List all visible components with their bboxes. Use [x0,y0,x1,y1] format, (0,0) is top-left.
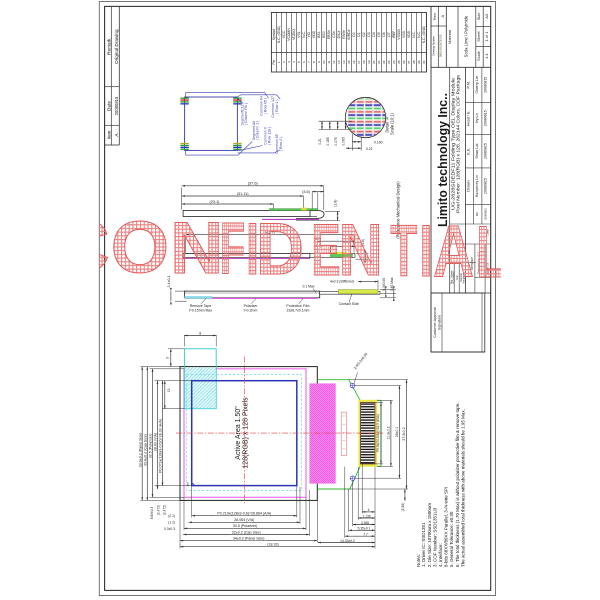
svg-text:D/C#: D/C# [337,31,341,39]
svg-text:VDD: VDD [407,30,411,38]
svg-text:P.M.: P.M. [466,81,471,89]
svg-text:R/W#: R/W# [342,30,346,39]
svg-text:8: 8 [312,61,316,63]
svg-text:A3: A3 [484,14,489,19]
svg-text:25: 25 [397,60,401,64]
svg-text:Symbol: Symbol [272,29,276,41]
svg-text:t=0.2mm: t=0.2mm [244,308,258,312]
svg-text:7: 7 [307,61,311,63]
svg-text:Size: Size [476,13,481,21]
svg-text:2. Die Size: 10700um x 1500um: 2. Die Size: 10700um x 1500um [427,503,432,567]
svg-text:0.21: 0.21 [366,147,373,151]
svg-text:(18.33): (18.33) [267,543,278,547]
svg-text:VSSIO: VSSIO [397,29,401,40]
svg-text:Scale: Scale [476,51,481,61]
svg-text:Limito technology Inc..: Limito technology Inc.. [435,93,450,227]
svg-text:P0.5x(24-0.64)=11.5 (W/A): P0.5x(24-0.64)=11.5 (W/A) [376,414,380,452]
svg-text:( Row 1 ): ( Row 1 ) [275,100,279,115]
svg-text:8: 8 [199,331,201,335]
svg-text:27.3±0.2: 27.3±0.2 [402,427,406,440]
svg-text:26±0.1: 26±0.1 [395,427,399,437]
svg-text:7.7: 7.7 [363,533,368,537]
svg-text:Cherry Lin: Cherry Lin [475,76,479,94]
svg-text:3: 3 [287,61,291,63]
svg-text:N.C. (GND): N.C. (GND) [277,26,281,44]
svg-text:Drawing Number: Drawing Number [432,36,436,56]
svg-text:VDD: VDD [312,30,316,38]
svg-text:VSL: VSL [297,31,301,38]
svg-text:1:1: 1:1 [484,53,489,58]
svg-text:Date: Date [106,101,111,111]
svg-text:VSS: VSS [402,30,406,38]
svg-text:0.065: 0.065 [342,137,346,146]
svg-text:(1.1): (1.1) [168,521,175,525]
svg-text:28: 28 [412,60,416,64]
svg-text:P0.219x(128x3-0.6)=26.864 (A/A: P0.219x(128x3-0.6)=26.864 (A/A) [217,512,271,516]
svg-text:23: 23 [387,60,391,64]
svg-text:Material: Material [447,30,452,44]
svg-text:4: 4 [292,61,296,63]
svg-text:Remove Tape: Remove Tape [190,304,212,308]
svg-text:E/RD#: E/RD# [347,29,351,39]
svg-text:Humphrey Lin: Humphrey Lin [475,175,479,197]
svg-text:Signature: Signature [438,315,442,330]
svg-text:5. General Tolerance: ±0.30: 5. General Tolerance: ±0.30 [449,511,454,567]
svg-text:(23.1): (23.1) [210,200,221,204]
svg-text:P0.073x(128x3-0.62)=28.03 (A/A: P0.073x(128x3-0.62)=28.03 (A/A) [159,419,163,473]
svg-text:14.33±0.2: 14.33±0.2 [340,539,355,543]
svg-text:1.139: 1.139 [362,514,370,518]
svg-text:13: 13 [337,60,341,64]
svg-text:11.3±0.2: 11.3±0.2 [386,426,390,439]
svg-text:O: O [111,206,169,288]
svg-text:0.075: 0.075 [334,137,338,146]
svg-text:16: 16 [352,60,356,64]
svg-text:(1.8): (1.8) [334,200,338,207]
svg-text:A: A [441,14,445,17]
svg-text:29: 29 [417,60,421,64]
svg-text:(37.6): (37.6) [248,182,259,186]
svg-text:6. The total thickness (1.70 M: 6. The total thickness (1.70 Max) is wit… [455,403,460,568]
svg-text:N.C.: N.C. [412,31,416,38]
svg-text:D6: D6 [382,32,386,36]
svg-text:4. Interface:: 4. Interface: [438,543,443,567]
svg-text:D1: D1 [357,32,361,36]
svg-text:N.C. (GND): N.C. (GND) [422,26,426,44]
svg-text:6: 6 [302,61,306,63]
svg-text:Pin: Pin [272,60,276,65]
svg-text:Active Area 1.50": Active Area 1.50" [235,406,242,460]
svg-text:13: 13 [167,389,171,393]
svg-text:Item: Item [106,130,111,139]
svg-text:11: 11 [327,60,331,63]
svg-text:( Row 2 ): ( Row 2 ) [279,137,283,152]
svg-text:Scale (10:1): Scale (10:1) [389,112,394,135]
svg-text:34±0.2 (Panel Size): 34±0.2 (Panel Size) [233,536,265,540]
svg-text:128(RGB) x 128 Pixels: 128(RGB) x 128 Pixels [242,397,249,469]
svg-text:20080815: 20080815 [484,110,488,126]
svg-text:Polarizer: Polarizer [244,304,259,308]
svg-text:BS1: BS1 [317,31,321,38]
svg-text:(3.6): (3.6) [302,190,311,194]
svg-text:3. COF Number: SSD1351U3: 3. COF Number: SSD1351U3 [432,507,437,567]
svg-text:E.E.: E.E. [466,147,471,155]
svg-text:Drawn: Drawn [466,180,471,192]
svg-text:8-bits 68XX/80XX Parallel, 3-/: 8-bits 68XX/80XX Parallel, 3-/4-wire SPI [444,487,449,567]
svg-text:N.C.: N.C. [417,31,421,38]
svg-text:Customer Approval: Customer Approval [433,307,437,338]
svg-text:14: 14 [342,60,346,64]
svg-text:VCI: VCI [307,32,311,38]
svg-text:30.5 (Polarizer): 30.5 (Polarizer) [233,524,258,528]
svg-text:22: 22 [382,60,386,64]
svg-text:RES#: RES# [327,30,331,39]
svg-text:20080815: 20080815 [484,77,488,93]
svg-text:4: 4 [368,508,370,512]
svg-text:1 of 1: 1 of 1 [484,32,489,42]
svg-text:19: 19 [367,60,371,64]
svg-text:Remark: Remark [106,38,111,55]
svg-text:Soda Lime / Polyimide: Soda Lime / Polyimide [464,15,469,57]
svg-text:9: 9 [317,61,321,63]
svg-text:N: N [170,206,223,289]
svg-text:Pixel Number: 128(RGB) x 128,: Pixel Number: 128(RGB) x 128, 262144 Col… [455,74,460,213]
svg-text:15: 15 [347,60,351,64]
svg-text:Rev.: Rev. [433,12,437,20]
svg-text:1: 1 [277,61,281,63]
svg-text:Original Drawing: Original Drawing [114,29,119,64]
svg-text:I: I [419,211,432,293]
svg-text:E: E [311,208,340,290]
svg-text:VCC: VCC [282,30,286,38]
svg-text:(1.472): (1.472) [162,505,166,515]
svg-text:20080815: 20080815 [484,178,488,194]
svg-text:(31.11): (31.11) [237,192,249,196]
svg-text:A: A [433,210,474,292]
svg-text:Head / E.: Head / E. [467,110,471,126]
svg-text:D5: D5 [377,32,381,36]
svg-text:4.365: 4.365 [361,521,369,525]
svg-text:T: T [390,209,417,291]
svg-text:3: 3 [165,357,169,359]
svg-text:(2.98): (2.98) [401,503,405,512]
svg-text:1. Driver IC: SSD1351: 1. Driver IC: SSD1351 [421,522,426,567]
svg-text:D3: D3 [367,32,371,36]
svg-text:Notes:: Notes: [416,554,421,567]
svg-text:18: 18 [362,60,366,64]
svg-text:( Column R# ): ( Column R# ) [244,103,248,125]
svg-text:Ivy Lo: Ivy Lo [475,113,479,123]
svg-text:CS#: CS# [332,31,336,38]
svg-text:Contact Side: Contact Side [339,302,359,306]
svg-text:20080815: 20080815 [114,96,119,115]
svg-text:(1.472): (1.472) [156,505,160,515]
svg-text:17: 17 [357,60,361,64]
svg-text:F: F [220,207,246,289]
svg-text:N.C.: N.C. [302,31,306,38]
svg-text:D2: D2 [362,32,366,36]
svg-text:20080815: 20080815 [484,143,488,159]
svg-text:10: 10 [322,60,326,64]
svg-text:Sheet: Sheet [476,30,481,41]
svg-text:D0: D0 [352,32,356,36]
svg-text:The actual assembled total thi: The actual assembled total thickness wit… [460,409,465,567]
svg-text:D7: D7 [387,32,391,36]
svg-text:(2.1): (2.1) [168,514,175,518]
svg-text:IREF: IREF [392,31,396,39]
svg-text:D: D [256,208,304,290]
svg-text:t=0.15mm Max: t=0.15mm Max [189,308,212,312]
svg-text:( Row 65 ): ( Row 65 ) [263,98,267,115]
svg-text:21: 21 [377,60,381,64]
svg-text:D4: D4 [372,32,376,36]
svg-text:28.03 (V/A): 28.03 (V/A) [154,433,158,451]
svg-text:28.064 (V/A): 28.064 (V/A) [234,518,254,522]
svg-text:0802182SC8130: 0802182SC8130 [439,34,443,57]
svg-text:8.69±0.3: 8.69±0.3 [150,507,154,520]
svg-text:VCOMH: VCOMH [287,28,291,41]
svg-text:26: 26 [402,60,406,64]
svg-text:5.35±0.1: 5.35±0.1 [358,527,371,531]
svg-text:27: 27 [407,60,411,64]
svg-text:32±0.2 (Cap Size): 32±0.2 (Cap Size) [232,530,261,534]
svg-text:24: 24 [392,60,396,64]
svg-text:32.5 (Polarizer): 32.5 (Polarizer) [149,434,153,459]
svg-text:Protective Film: Protective Film [286,304,309,308]
svg-text:20: 20 [372,60,376,64]
svg-text:VDDIO: VDDIO [292,29,296,40]
svg-text:33.6±0.2 (Panel Size): 33.6±0.2 (Panel Size) [138,433,142,468]
svg-text:BS0: BS0 [322,31,326,38]
svg-text:33.8±0.2 (Cap Size): 33.8±0.2 (Cap Size) [144,434,148,466]
svg-text:2: 2 [282,61,286,63]
svg-text:Sean Lai: Sean Lai [475,143,479,158]
svg-text:0.190: 0.190 [374,140,383,144]
svg-text:30: 30 [422,60,426,64]
svg-text:( Column 1 ): ( Column 1 ) [256,121,260,141]
svg-text:N: N [339,210,383,292]
svg-text:0.185: 0.185 [326,137,330,146]
svg-text:( Row 128 ): ( Row 128 ) [267,127,271,146]
svg-text:23x6.7x0.1mm: 23x6.7x0.1mm [287,308,310,312]
svg-text:0.21: 0.21 [318,138,322,145]
svg-text:12: 12 [332,60,336,64]
svg-text:0.3±0.3: 0.3±0.3 [164,527,175,531]
svg-text:5: 5 [297,61,301,63]
